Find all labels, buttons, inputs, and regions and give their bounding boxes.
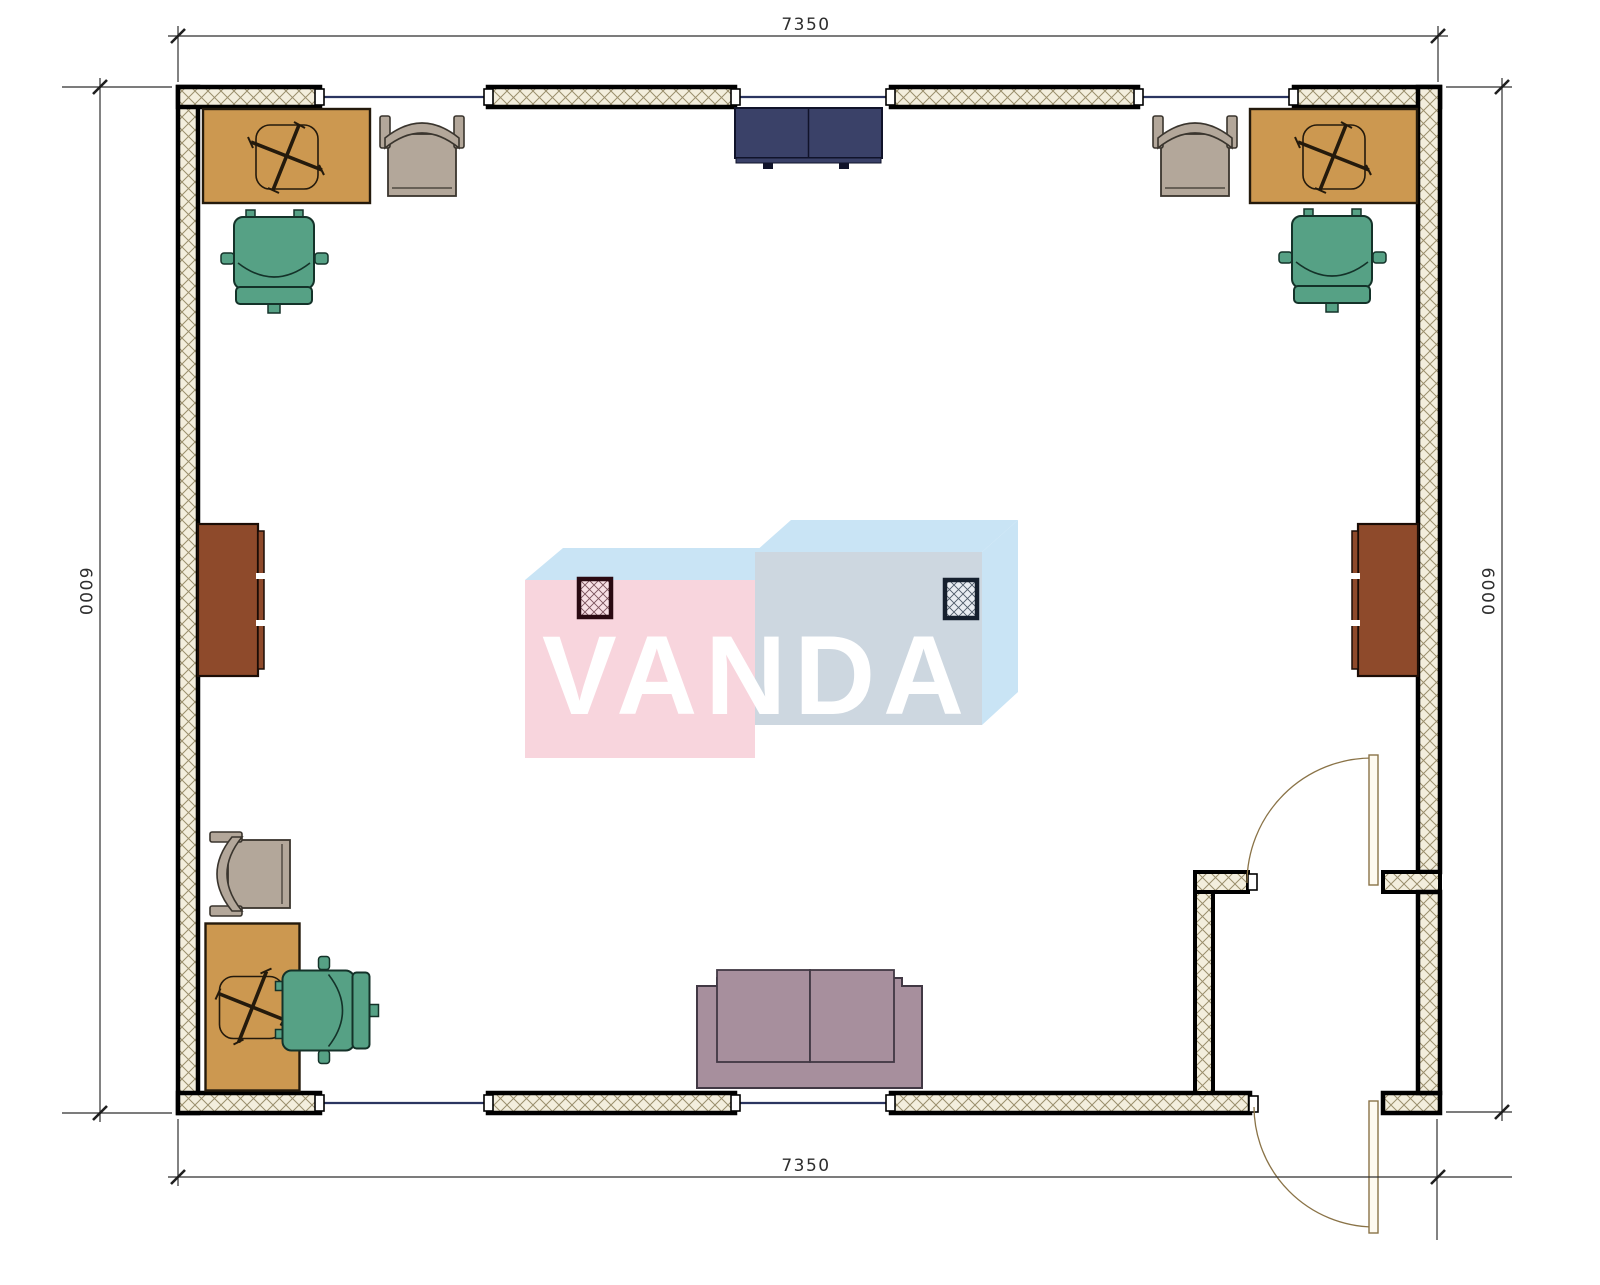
desk-top-right bbox=[1250, 109, 1417, 203]
sofa-bottom-center bbox=[697, 970, 922, 1088]
floor-plan-canvas: VANDA bbox=[0, 0, 1600, 1280]
office-chair-bottom-left bbox=[276, 957, 379, 1064]
top-wall-seg-1 bbox=[178, 87, 320, 107]
entry-exterior-door-swing bbox=[1254, 1107, 1373, 1227]
dimension-bottom-lines bbox=[168, 1119, 1512, 1240]
watermark-right-box-top bbox=[755, 520, 1018, 552]
vestibule-partition-top bbox=[1195, 872, 1248, 892]
office-chair-top-right bbox=[1279, 209, 1386, 312]
right-wall-door-stub bbox=[1383, 872, 1440, 892]
vestibule-interior-door-leaf bbox=[1369, 755, 1378, 885]
right-wall-upper bbox=[1418, 87, 1440, 872]
cabinet-top-center bbox=[735, 108, 882, 169]
office-chair-top-left bbox=[221, 210, 328, 313]
bottom-wall-seg-1 bbox=[178, 1093, 320, 1113]
left-wall bbox=[178, 87, 198, 1113]
desk-top-left bbox=[203, 109, 370, 203]
bottom-wall-seg-3 bbox=[891, 1093, 1250, 1113]
bottom-wall-seg-2 bbox=[488, 1093, 735, 1113]
column-right bbox=[945, 580, 977, 618]
column-left bbox=[579, 579, 611, 617]
watermark-text: VANDA bbox=[542, 613, 972, 738]
dimension-top-label: 7350 bbox=[781, 15, 830, 35]
sideboard-right-wall bbox=[1350, 524, 1418, 676]
vestibule-partition-side bbox=[1195, 892, 1213, 1093]
right-wall-lower bbox=[1418, 892, 1440, 1093]
vanda-watermark: VANDA bbox=[525, 520, 1018, 758]
bottom-wall-seg-4 bbox=[1383, 1093, 1440, 1113]
dimension-right-label: 6000 bbox=[1477, 567, 1497, 616]
sideboard-left-wall bbox=[198, 524, 266, 676]
dimension-left-label: 6000 bbox=[75, 567, 95, 616]
watermark-right-box-side bbox=[982, 520, 1018, 725]
entry-exterior-door-leaf bbox=[1369, 1101, 1378, 1233]
top-wall-seg-2 bbox=[488, 87, 735, 107]
dimension-bottom-label: 7350 bbox=[781, 1156, 830, 1176]
watermark-left-box-top bbox=[525, 548, 793, 580]
top-wall-seg-3 bbox=[891, 87, 1138, 107]
floor-plan-page: VANDA bbox=[0, 0, 1600, 1280]
